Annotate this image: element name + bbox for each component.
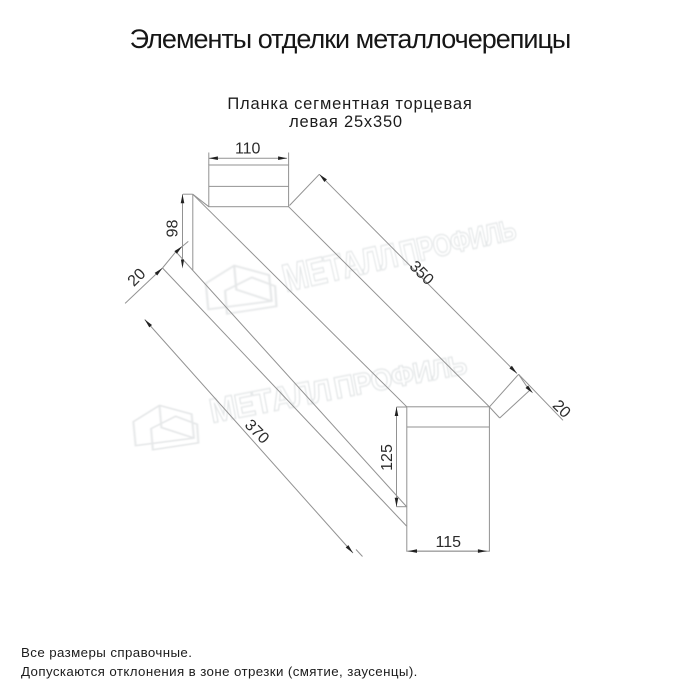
svg-text:125: 125 — [379, 444, 396, 471]
svg-text:98: 98 — [165, 220, 182, 238]
svg-text:20: 20 — [125, 265, 150, 290]
svg-text:МЕТАЛЛ ПРОФИЛЬ: МЕТАЛЛ ПРОФИЛЬ — [278, 205, 519, 301]
svg-text:110: 110 — [235, 141, 261, 158]
svg-text:20: 20 — [549, 397, 574, 422]
svg-text:115: 115 — [436, 534, 462, 551]
